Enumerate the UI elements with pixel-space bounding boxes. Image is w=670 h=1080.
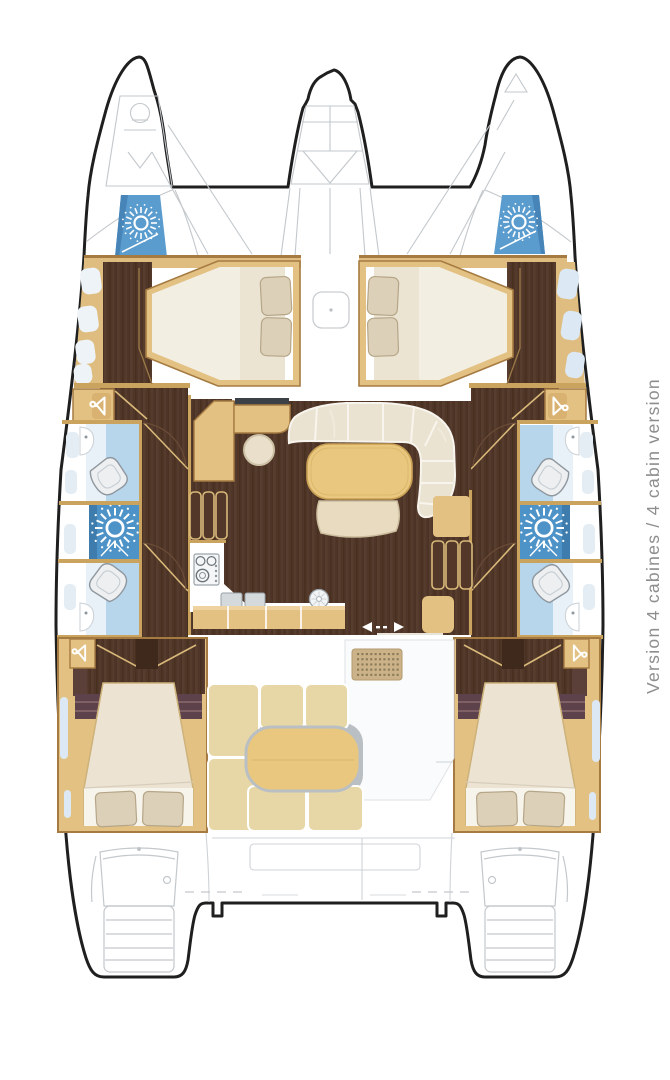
svg-text:Version 4 cabines / 4 cabin ve: Version 4 cabines / 4 cabin version xyxy=(643,378,663,694)
